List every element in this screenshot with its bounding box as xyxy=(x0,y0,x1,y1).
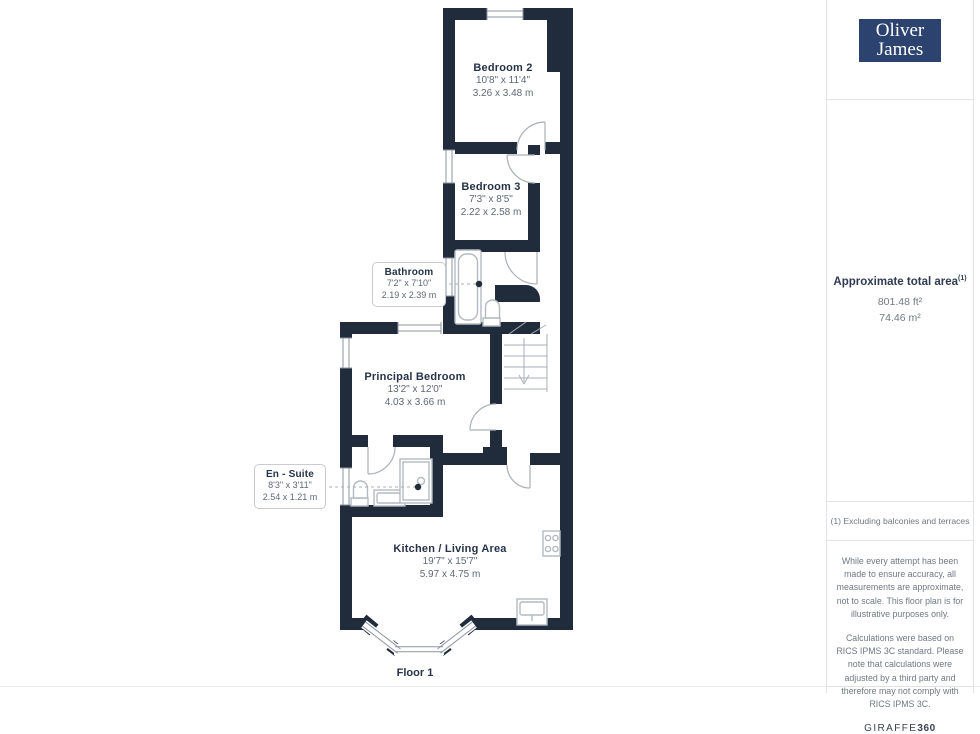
room-label-bathroom: Bathroom 7'2" x 7'10" 2.19 x 2.39 m xyxy=(372,262,446,307)
room-dim-metric: 2.19 x 2.39 m xyxy=(376,290,442,302)
room-dim-imperial: 8'3" x 3'11" xyxy=(258,480,322,492)
giraffe-text: GIRAFFE xyxy=(864,723,917,734)
giraffe360-logo: GIRAFFE360 xyxy=(836,723,964,734)
oliver-james-logo: Oliver James xyxy=(859,19,941,62)
stove xyxy=(543,531,560,556)
area-title-superscript: (1) xyxy=(958,275,967,282)
door-kitchen xyxy=(507,465,530,488)
floor-label: Floor 1 xyxy=(355,667,475,679)
disclaimer-paragraph-1: While every attempt has been made to ens… xyxy=(836,555,964,621)
room-dim-imperial: 7'2" x 7'10" xyxy=(376,278,442,290)
window-principal-top xyxy=(398,322,441,334)
room-dim-metric: 2.54 x 1.21 m xyxy=(258,492,322,504)
room-label-ensuite: En - Suite 8'3" x 3'11" 2.54 x 1.21 m xyxy=(254,464,326,509)
door-principal-bedroom xyxy=(470,404,496,430)
toilet-ensuite xyxy=(351,481,368,506)
window-bedroom3-left xyxy=(443,150,455,183)
bathroom-leader-dot xyxy=(476,281,482,287)
footnote-text: (1) Excluding balconies and terraces xyxy=(830,516,969,526)
window-bedroom2-top xyxy=(487,8,523,20)
logo-line-2: James xyxy=(877,41,923,60)
door-bathroom xyxy=(505,252,537,284)
logo-section: Oliver James xyxy=(827,0,973,100)
area-value-m: 74.46 m² xyxy=(879,310,920,326)
ensuite-leader-dot xyxy=(415,484,421,490)
area-value-ft: 801.48 ft² xyxy=(878,294,922,310)
door-bedroom3 xyxy=(507,155,535,183)
disclaimer-paragraph-2: Calculations were based on RICS IPMS 3C … xyxy=(836,632,964,711)
bathtub xyxy=(455,250,481,324)
footnote-section: (1) Excluding balconies and terraces xyxy=(827,502,973,541)
area-title: Approximate total area(1) xyxy=(833,275,966,288)
info-panel: Oliver James Approximate total area(1) 8… xyxy=(826,0,974,693)
area-title-text: Approximate total area xyxy=(833,276,958,288)
giraffe-360-text: 360 xyxy=(917,723,936,734)
total-area-section: Approximate total area(1) 801.48 ft² 74.… xyxy=(827,100,973,502)
door-ensuite xyxy=(368,447,395,474)
room-name: Bathroom xyxy=(376,267,442,278)
toilet-bathroom xyxy=(483,300,500,326)
room-name: En - Suite xyxy=(258,469,322,480)
kitchen-sink xyxy=(517,599,547,625)
window-principal-left xyxy=(340,338,352,368)
shower-ensuite xyxy=(400,459,432,503)
floorplan-page: { "brand": { "logo_line1": "Oliver", "lo… xyxy=(0,0,980,693)
disclaimer-section: While every attempt has been made to ens… xyxy=(827,541,973,687)
logo-line-1: Oliver xyxy=(876,22,925,41)
bay-window xyxy=(363,622,476,655)
